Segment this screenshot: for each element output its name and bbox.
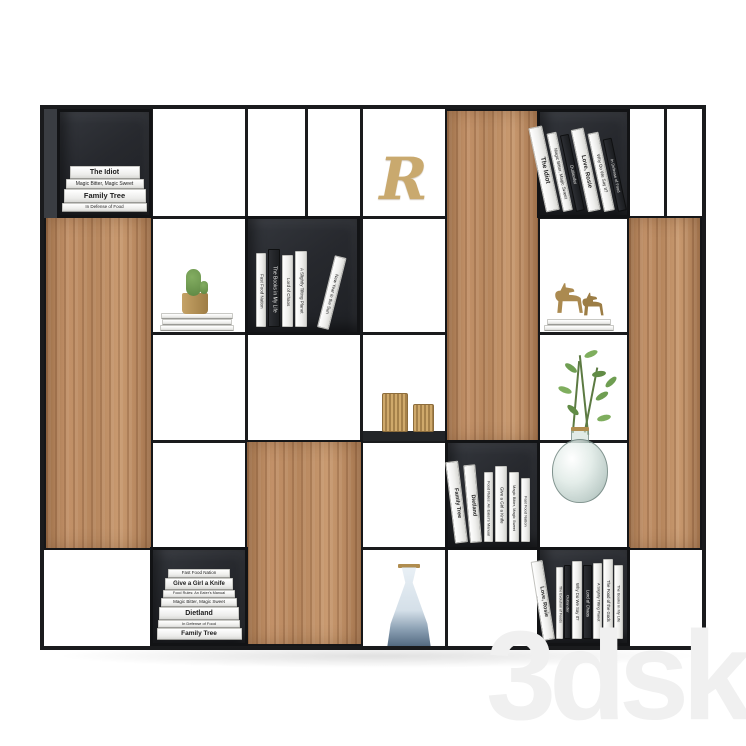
candle-holder <box>413 404 434 432</box>
book: New Year in the Sun <box>317 255 347 330</box>
brass-pot <box>182 293 208 314</box>
book <box>547 319 611 325</box>
book: Food Rules: An Eater's Manual <box>484 472 493 542</box>
frame-line <box>664 109 667 219</box>
leaf <box>557 385 572 394</box>
cactus-arm <box>200 281 208 294</box>
horse-figurine <box>580 289 606 319</box>
cubby-bottom-left: Fast Food Nation Give a Girl a Knife Foo… <box>150 547 248 646</box>
book-stack: The Idiot Magic Bitter, Magic Sweet Fami… <box>63 166 146 212</box>
book: Give a Girl a Knife <box>165 578 233 590</box>
wood-panel-center-left <box>245 440 363 646</box>
monogram-r: R <box>362 117 445 213</box>
book-stack: Fast Food Nation Give a Girl a Knife Foo… <box>156 569 242 640</box>
cubby-center: Family Tree Dietland Food Rules: An Eate… <box>445 440 540 550</box>
book: Lord of Chaos <box>282 255 293 327</box>
magazine <box>160 325 234 331</box>
leaf <box>563 362 578 374</box>
leaf <box>595 389 610 402</box>
cubby-mid-left: Fast Food Nation The Books in My Life Lo… <box>245 216 360 335</box>
book: Food Rules: An Eater's Manual <box>163 590 235 598</box>
book: Family Tree <box>157 628 242 640</box>
book: Give a Girl a Knife <box>495 466 507 542</box>
shelf <box>363 431 445 441</box>
book: The Idiot <box>70 166 140 179</box>
leaf <box>583 348 598 360</box>
book: Magic Bitter, Magic Sweet <box>66 179 144 189</box>
book: Magic Bitter, Magic Sweet <box>509 472 519 542</box>
vase-gold-band <box>571 427 589 431</box>
shelving-unit: The Idiot Magic Bitter, Magic Sweet Fami… <box>40 105 706 650</box>
book-row: Family Tree Dietland Food Rules: An Eate… <box>455 460 530 542</box>
candle-holder <box>382 393 408 432</box>
book: Family Tree <box>64 189 146 203</box>
leaf <box>604 375 618 390</box>
frame-line <box>305 109 308 219</box>
wood-panel-left <box>44 216 153 550</box>
book-row: The Idiot Magic Bitter, Magic Sweet Outl… <box>546 125 627 211</box>
wood-panel-center-right <box>445 109 540 443</box>
cubby-top-right: The Idiot Magic Bitter, Magic Sweet Outl… <box>537 109 630 218</box>
product-render: The Idiot Magic Bitter, Magic Sweet Fami… <box>0 0 746 746</box>
glass-vase <box>552 439 608 503</box>
book: A Slightly Tilting Planet <box>295 251 307 327</box>
branch-stem <box>579 355 589 435</box>
book: Fast Food Nation <box>521 478 530 542</box>
book: Fast Food Nation <box>256 253 266 327</box>
book: Magic Bitter, Magic Sweet <box>161 598 237 607</box>
book: In Defense of Food <box>62 203 147 212</box>
magazine <box>162 319 232 325</box>
book: The Books in My Life <box>268 249 280 327</box>
book: In Defense of Food <box>158 620 240 628</box>
watermark: 3dsky <box>486 616 746 736</box>
book: Fast Food Nation <box>168 569 230 578</box>
glass-carafe <box>386 567 432 646</box>
leaf <box>596 413 611 423</box>
cubby-side-face <box>44 109 57 218</box>
cubby-top-left: The Idiot Magic Bitter, Magic Sweet Fami… <box>57 109 152 218</box>
book-row: Fast Food Nation The Books in My Life Lo… <box>256 249 329 327</box>
wood-panel-right <box>627 216 702 550</box>
cactus <box>186 269 201 296</box>
book: Dietland <box>159 607 239 620</box>
book <box>544 325 614 331</box>
